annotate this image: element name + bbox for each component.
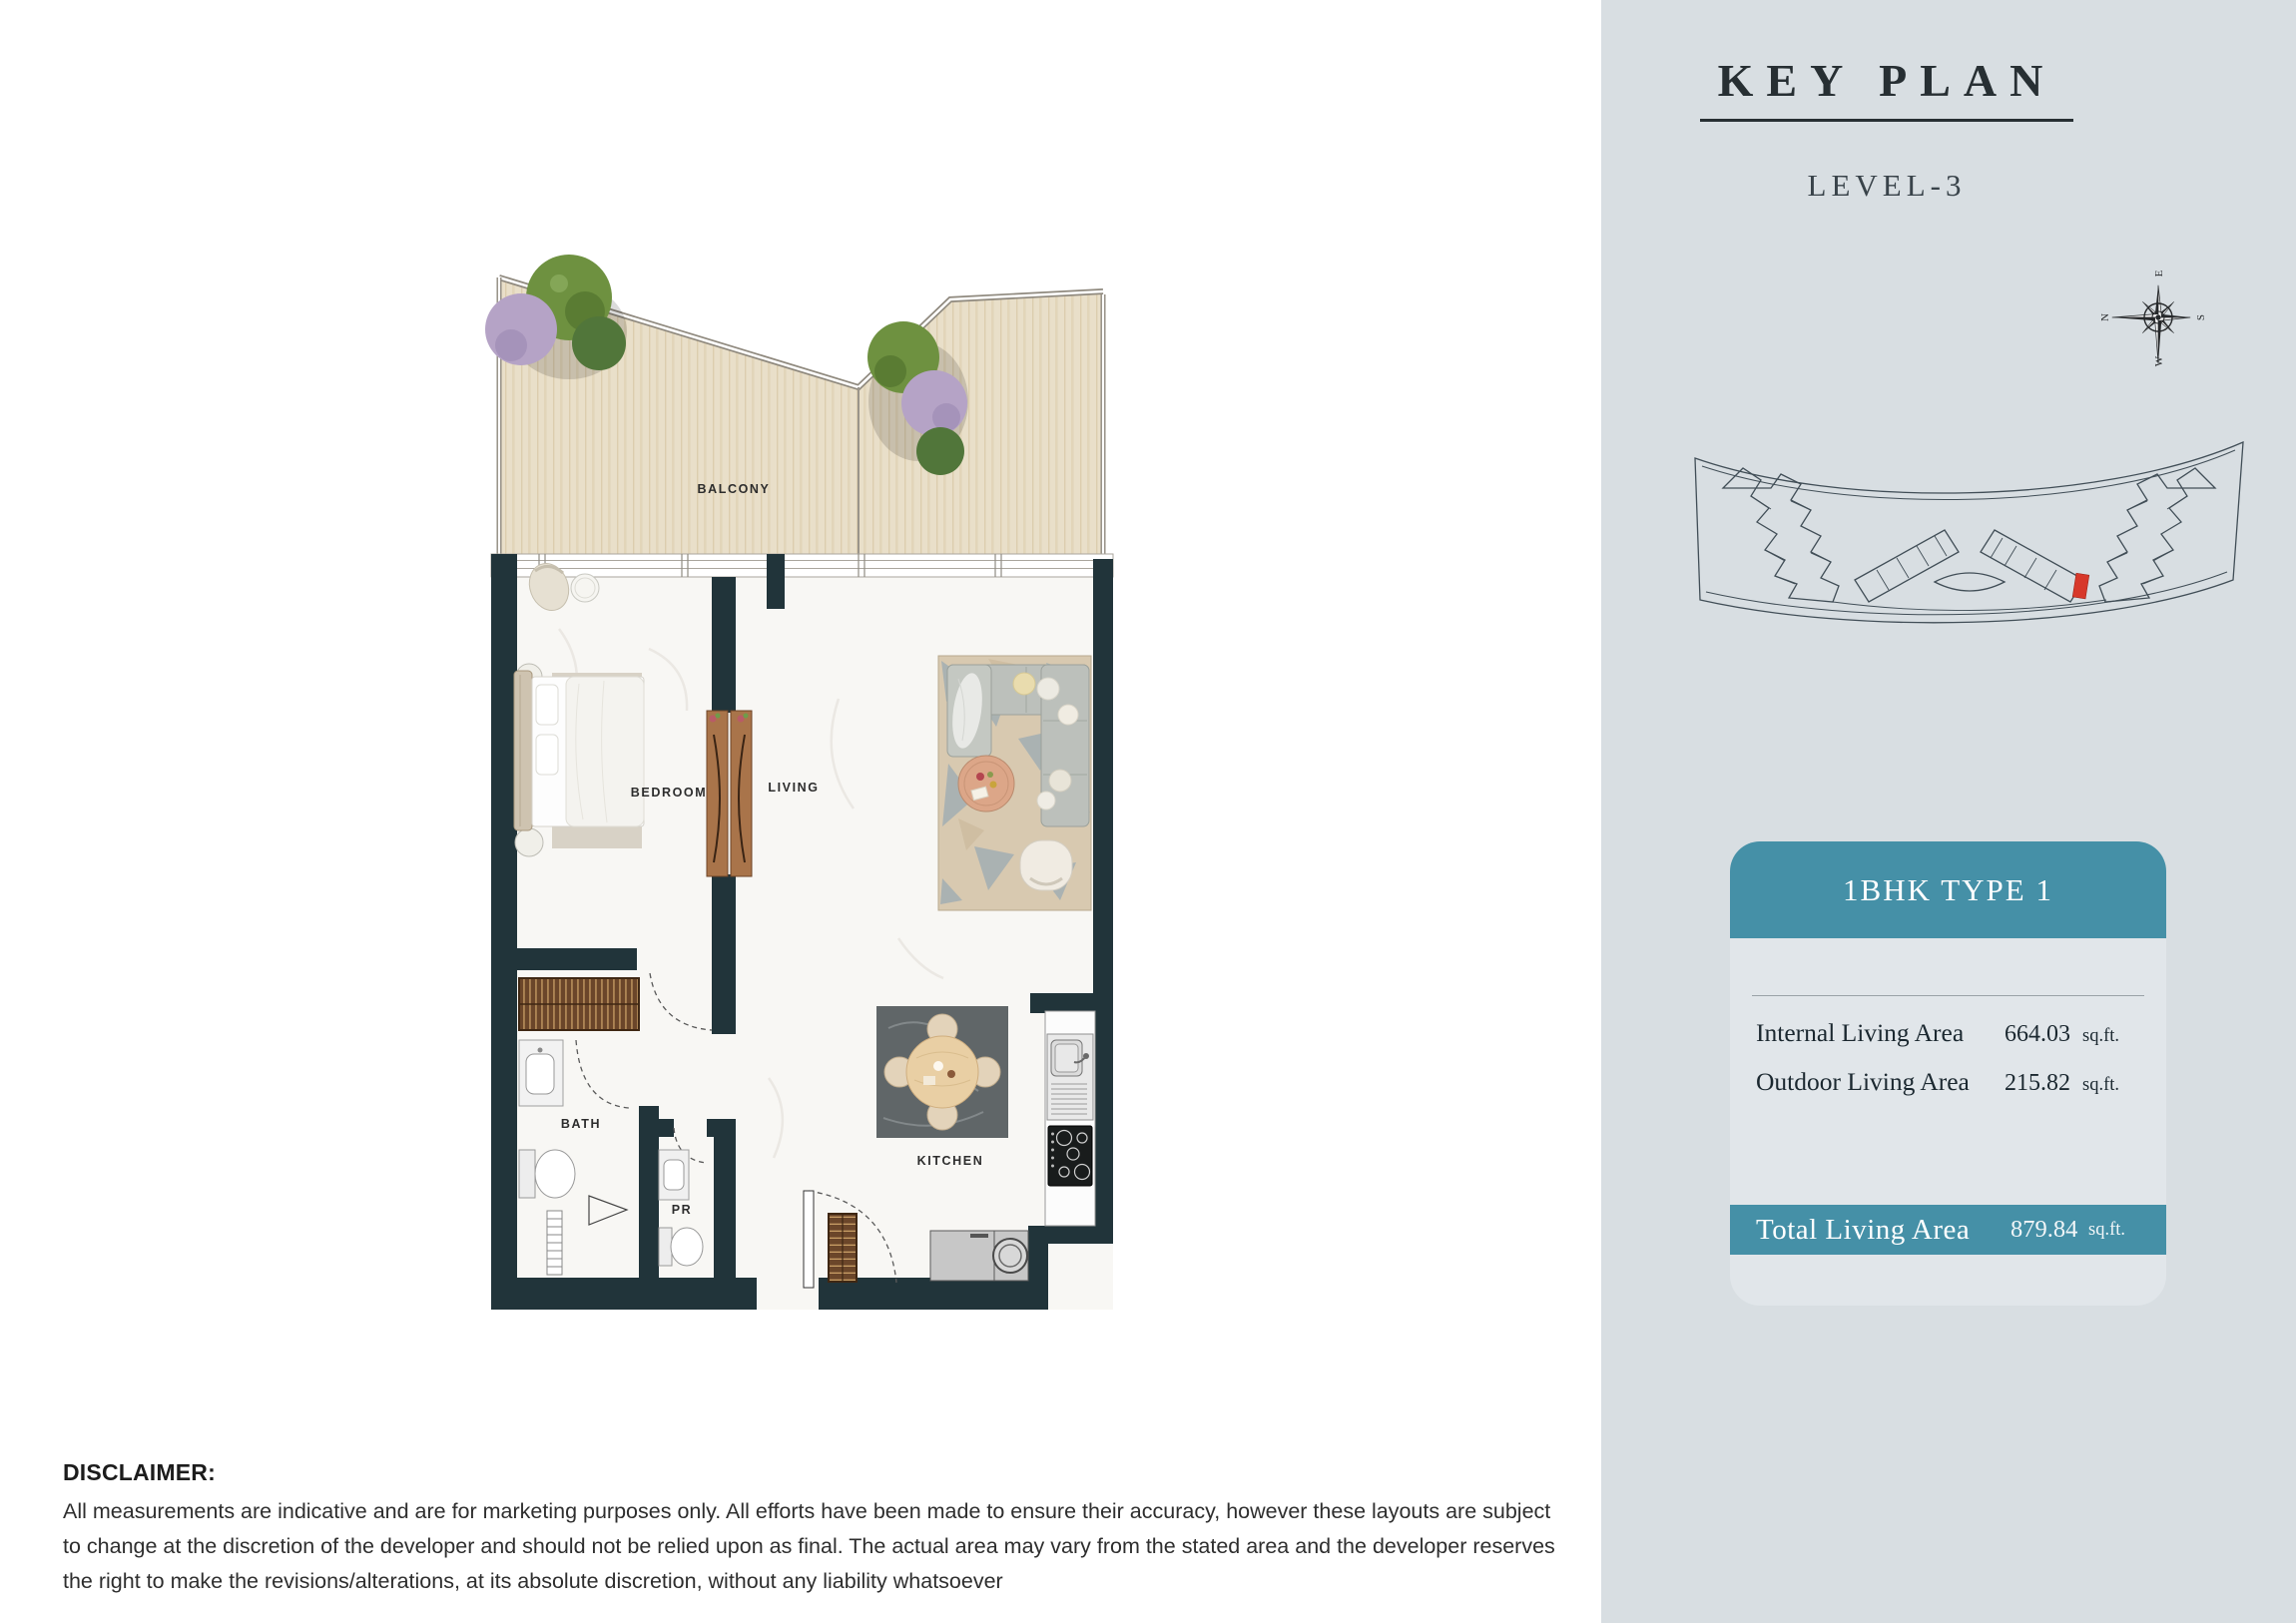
keyplan-map <box>1687 424 2251 642</box>
room-label-bedroom: BEDROOM <box>631 786 707 800</box>
disclaimer-text: All measurements are indicative and are … <box>63 1494 1565 1598</box>
area-label: Outdoor Living Area <box>1756 1067 2005 1097</box>
unit-card-footer <box>1730 1255 2166 1306</box>
pr-sink-icon <box>659 1150 689 1200</box>
room-label-balcony: BALCONY <box>697 482 770 496</box>
disclaimer-heading: DISCLAIMER: <box>63 1459 1565 1486</box>
compass-label-w: W <box>2153 355 2165 366</box>
unit-card: 1BHK TYPE 1 Internal Living Area 664.03 … <box>1730 841 2166 1306</box>
entrance-door-leaf <box>804 1191 814 1288</box>
highlighted-unit <box>2072 573 2089 599</box>
area-value: 664.03 <box>2005 1021 2076 1048</box>
toilet-icon <box>519 1150 575 1198</box>
keyplan-building-outline <box>1695 442 2243 623</box>
accent-chair-icon <box>1020 840 1072 890</box>
unit-type-title: 1BHK TYPE 1 <box>1843 872 2053 908</box>
compass-label-s: S <box>2195 314 2207 320</box>
plant-icon <box>485 255 627 379</box>
room-label-kitchen: KITCHEN <box>917 1154 984 1168</box>
shower-shelf-icon <box>547 1211 562 1275</box>
area-unit: sq.ft. <box>2076 1075 2140 1096</box>
page-title: KEY PLAN <box>1700 54 2074 122</box>
total-label: Total Living Area <box>1756 1214 2010 1247</box>
bath-closet-icon <box>519 978 639 1030</box>
balcony-area: BALCONY <box>485 255 1103 557</box>
total-area-row: Total Living Area 879.84 sq.ft. <box>1730 1205 2166 1255</box>
compass-rose-icon: N E S W <box>2098 258 2218 377</box>
coffee-table-icon <box>958 756 1014 811</box>
key-plan-header: KEY PLAN LEVEL-3 <box>1601 54 2172 204</box>
area-row-outdoor: Outdoor Living Area 215.82 sq.ft. <box>1730 1067 2166 1116</box>
unit-card-header: 1BHK TYPE 1 <box>1730 841 2166 938</box>
compass-label-e: E <box>2153 270 2165 276</box>
area-label: Internal Living Area <box>1756 1018 2005 1048</box>
room-label-pr: PR <box>672 1203 693 1217</box>
area-row-internal: Internal Living Area 664.03 sq.ft. <box>1730 1018 2166 1067</box>
total-unit: sq.ft. <box>2082 1220 2140 1241</box>
pr-toilet-icon <box>659 1228 703 1266</box>
room-label-living: LIVING <box>768 781 819 795</box>
floor-plan: BALCONY <box>419 180 1178 1338</box>
area-unit: sq.ft. <box>2076 1026 2140 1047</box>
kitchen-sink-icon <box>1047 1034 1093 1120</box>
room-label-bath: BATH <box>561 1117 601 1131</box>
entry-closet-icon <box>829 1214 857 1282</box>
floor-plan-page: { "key_plan": { "title": "KEY PLAN", "le… <box>0 0 2296 1623</box>
dining-set-icon <box>876 1006 1008 1138</box>
key-plan-panel <box>1601 0 2296 1623</box>
bath-sink-icon <box>519 1040 563 1106</box>
stove-icon <box>1048 1126 1092 1186</box>
unit-card-body: Internal Living Area 664.03 sq.ft. Outdo… <box>1730 938 2166 1205</box>
level-label: LEVEL-3 <box>1601 168 2172 204</box>
card-divider <box>1752 995 2144 996</box>
washing-machine-icon <box>930 1231 1028 1281</box>
compass-label-n: N <box>2099 313 2111 321</box>
total-value: 879.84 <box>2010 1216 2082 1244</box>
disclaimer: DISCLAIMER: All measurements are indicat… <box>63 1459 1565 1598</box>
area-value: 215.82 <box>2005 1070 2076 1097</box>
